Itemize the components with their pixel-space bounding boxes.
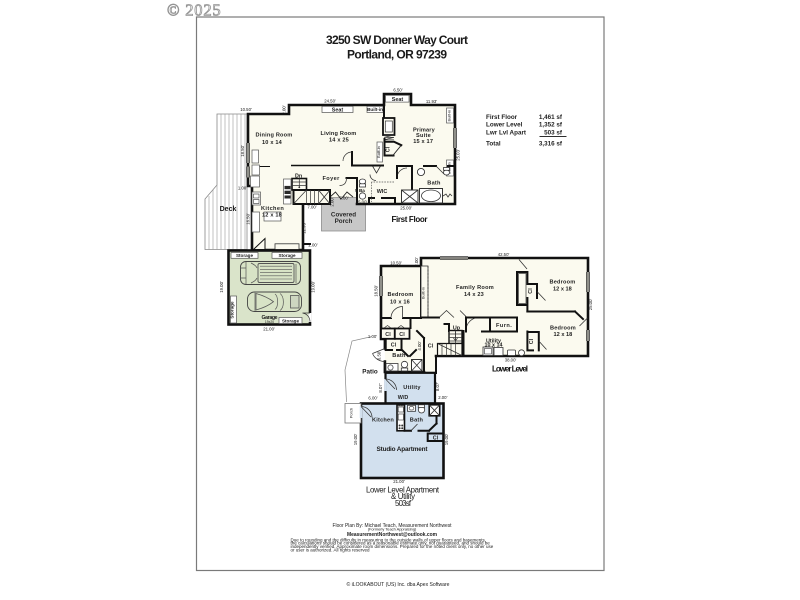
svg-text:Bedroom: Bedroom: [550, 280, 576, 286]
svg-text:7.00': 7.00': [339, 196, 348, 201]
svg-text:15 x 17: 15 x 17: [413, 139, 433, 145]
svg-text:1,352 sf: 1,352 sf: [539, 122, 563, 129]
svg-text:Seat: Seat: [332, 108, 344, 114]
svg-text:Cl: Cl: [399, 332, 405, 338]
svg-text:1.00': 1.00': [368, 334, 377, 339]
svg-text:25.00': 25.00': [400, 206, 412, 211]
svg-text:2.00': 2.00': [330, 197, 335, 206]
svg-text:First Floor: First Floor: [392, 215, 428, 224]
svg-text:Foyer: Foyer: [323, 176, 341, 182]
svg-text:Up: Up: [453, 326, 461, 332]
svg-text:12.93': 12.93': [302, 222, 307, 234]
svg-text:12 x 18: 12 x 18: [262, 213, 282, 219]
svg-text:18.50': 18.50': [240, 145, 245, 157]
svg-text:© iLOOKABOUT (US) Inc. dba Ape: © iLOOKABOUT (US) Inc. dba Apex Software: [347, 581, 451, 588]
svg-text:1,461 sf: 1,461 sf: [539, 114, 563, 121]
svg-text:24.50': 24.50': [324, 98, 336, 103]
svg-text:Kitchen: Kitchen: [261, 206, 284, 212]
svg-text:11.93': 11.93': [426, 99, 437, 104]
svg-text:6.50': 6.50': [393, 87, 402, 92]
svg-text:503sf: 503sf: [395, 499, 412, 508]
svg-text:Deck: Deck: [220, 206, 237, 213]
svg-text:21.00': 21.00': [393, 479, 405, 484]
svg-text:25.03': 25.03': [456, 149, 461, 161]
svg-text:Family Room: Family Room: [456, 285, 494, 291]
svg-text:Built-in: Built-in: [421, 287, 426, 299]
svg-text:3,316 sf: 3,316 sf: [539, 141, 563, 148]
svg-text:10.50': 10.50': [390, 260, 402, 265]
svg-text:10.50': 10.50': [240, 107, 252, 112]
svg-text:Furn.: Furn.: [496, 323, 512, 329]
svg-text:Kitchen: Kitchen: [372, 418, 394, 424]
svg-text:19.00': 19.00': [444, 434, 449, 446]
svg-text:Living Room: Living Room: [321, 131, 357, 137]
svg-text:21.00': 21.00': [263, 327, 275, 332]
svg-text:8.07': 8.07': [435, 382, 440, 391]
svg-text:2.00': 2.00': [282, 105, 287, 114]
svg-text:(Formerly Teach Appraising): (Formerly Teach Appraising): [368, 527, 417, 532]
svg-text:10 x 14: 10 x 14: [485, 343, 503, 349]
svg-text:10 x 16: 10 x 16: [390, 300, 410, 306]
svg-text:Porch: Porch: [335, 218, 353, 225]
svg-text:Portland, OR 97239: Portland, OR 97239: [347, 48, 447, 62]
svg-text:Storage: Storage: [236, 253, 254, 258]
svg-text:35.00': 35.00': [356, 200, 368, 205]
svg-text:3250 SW Donner Way Court: 3250 SW Donner Way Court: [326, 33, 468, 47]
svg-text:2.00': 2.00': [438, 395, 447, 400]
svg-text:Patio: Patio: [362, 369, 378, 376]
svg-text:Built-in: Built-in: [377, 146, 381, 158]
svg-text:Dining Room: Dining Room: [256, 133, 293, 139]
svg-text:Ref: Ref: [398, 404, 403, 408]
svg-text:Cl: Cl: [528, 288, 534, 294]
svg-text:4.00': 4.00': [417, 341, 422, 350]
svg-text:14 x 25: 14 x 25: [329, 138, 349, 144]
svg-text:Porch: Porch: [349, 408, 354, 418]
svg-text:Lwr Lvl Apart: Lwr Lvl Apart: [486, 129, 527, 136]
svg-text:Cl: Cl: [529, 338, 535, 344]
svg-text:Bath: Bath: [410, 418, 424, 424]
svg-text:Cl: Cl: [386, 146, 392, 152]
svg-text:Bedroom: Bedroom: [388, 292, 414, 298]
svg-text:Bedroom: Bedroom: [550, 326, 576, 332]
svg-text:WIC: WIC: [377, 189, 388, 195]
svg-text:6.50': 6.50': [377, 351, 382, 360]
svg-text:First Floor: First Floor: [486, 114, 518, 121]
svg-text:Seat: Seat: [392, 97, 404, 103]
svg-text:Built-in: Built-in: [448, 110, 452, 122]
svg-text:Lower Level: Lower Level: [492, 365, 528, 374]
svg-text:Lower Level: Lower Level: [486, 122, 523, 129]
svg-text:Cl: Cl: [428, 344, 434, 350]
svg-text:Bath: Bath: [427, 181, 441, 187]
svg-text:Storage: Storage: [282, 318, 300, 323]
svg-text:19.00': 19.00': [219, 281, 224, 293]
svg-text:10 x 14: 10 x 14: [262, 140, 283, 146]
svg-text:Cl: Cl: [385, 332, 391, 338]
svg-text:7.00': 7.00': [307, 205, 316, 210]
svg-text:12 x 18: 12 x 18: [553, 286, 572, 292]
svg-text:25.00': 25.00': [588, 299, 593, 311]
svg-text:or user is authorized. All rig: or user is authorized. All rights reserv…: [291, 548, 371, 553]
svg-text:2.00': 2.00': [308, 243, 317, 248]
svg-text:Built-in: Built-in: [367, 107, 383, 112]
svg-text:W/D: W/D: [398, 395, 409, 401]
svg-text:Total: Total: [486, 141, 501, 148]
svg-text:Studio Apartment: Studio Apartment: [377, 446, 429, 453]
svg-text:Cl: Cl: [391, 343, 397, 349]
svg-text:Utility: Utility: [403, 385, 421, 391]
svg-text:19.00': 19.00': [353, 434, 358, 446]
svg-text:Cl: Cl: [433, 435, 439, 441]
svg-text:42.50': 42.50': [498, 252, 510, 257]
svg-text:14 x 23: 14 x 23: [464, 292, 484, 298]
svg-text:503 sf: 503 sf: [544, 129, 563, 136]
svg-text:5 Ba: 5 Ba: [355, 188, 365, 193]
svg-text:8.07': 8.07': [378, 383, 383, 392]
svg-text:Storage: Storage: [230, 301, 235, 319]
svg-text:12 x 18: 12 x 18: [554, 332, 573, 338]
svg-text:Storage: Storage: [278, 253, 296, 258]
svg-text:19.00': 19.00': [311, 281, 316, 293]
svg-text:18.50': 18.50': [374, 285, 379, 297]
svg-text:16.50': 16.50': [246, 213, 251, 225]
svg-text:2.00': 2.00': [414, 257, 419, 266]
svg-text:38.00': 38.00': [505, 357, 517, 362]
svg-text:Dn: Dn: [295, 173, 302, 179]
svg-text:Bath: Bath: [392, 353, 406, 359]
svg-text:1.00': 1.00': [238, 186, 247, 191]
svg-text:6.00': 6.00': [368, 395, 377, 400]
svg-text:19x20: 19x20: [265, 320, 274, 324]
